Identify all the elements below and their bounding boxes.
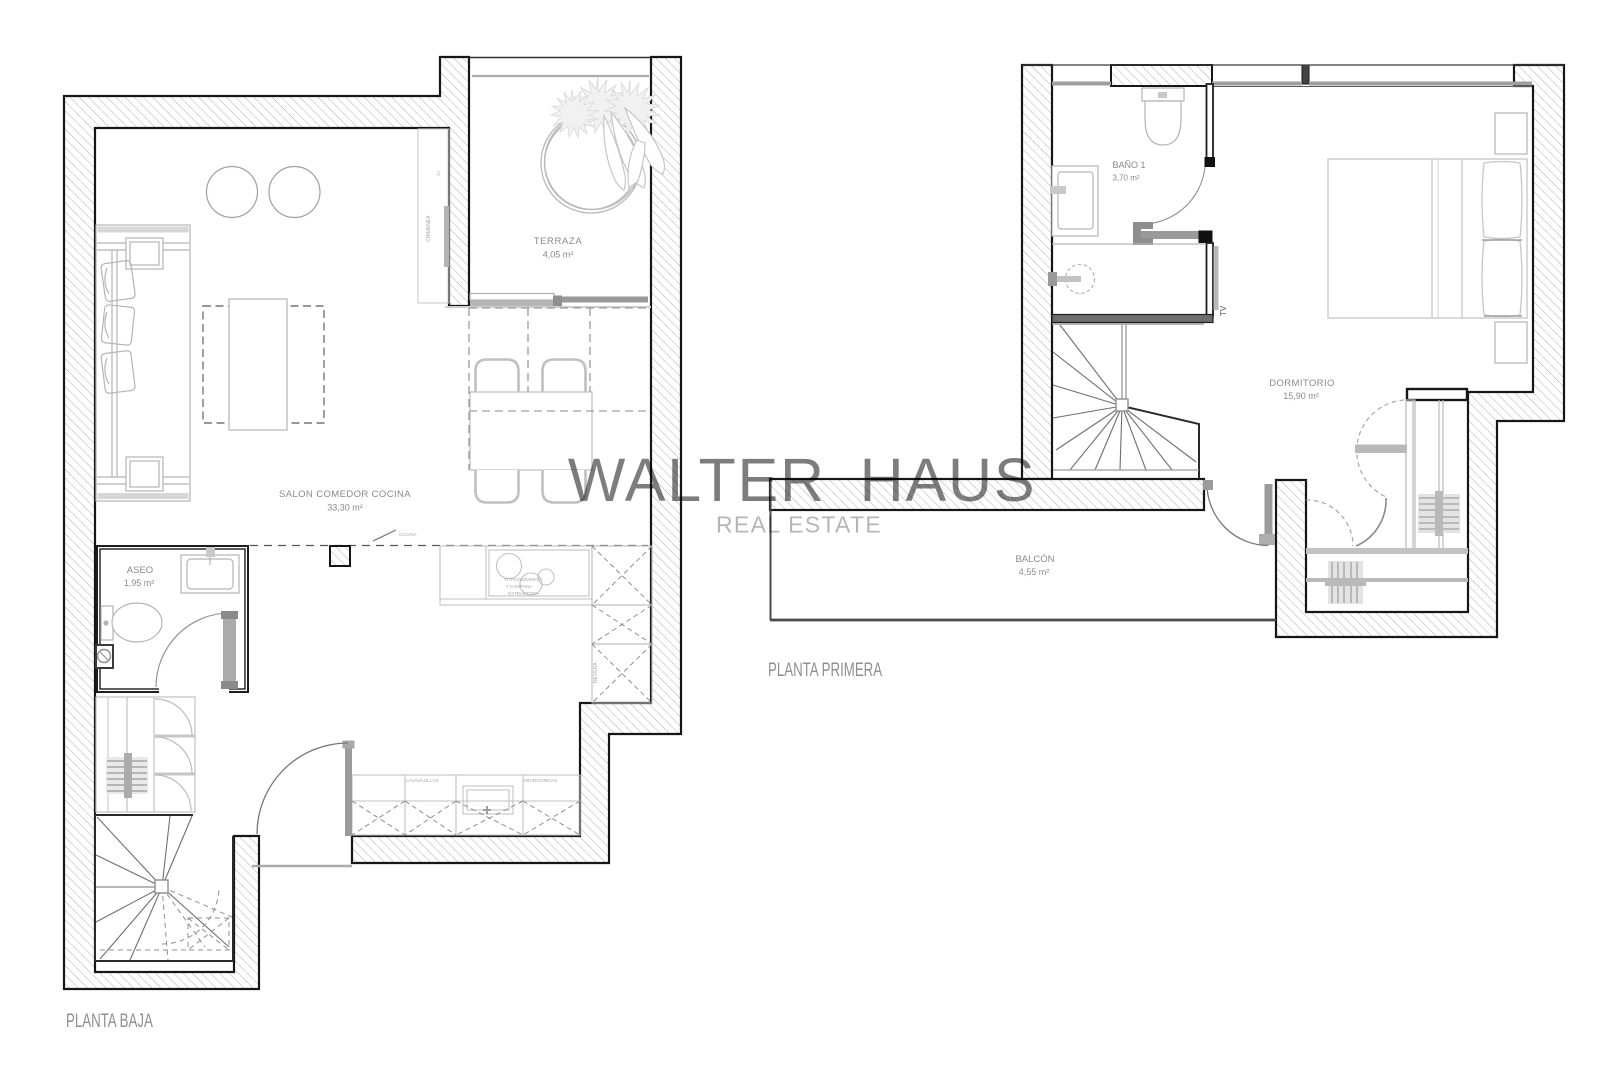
svg-text:LAVAVAJILLAS: LAVAVAJILLAS <box>406 778 439 784</box>
svg-text:TV: TV <box>1219 305 1228 316</box>
svg-text:Y CAMPANA: Y CAMPANA <box>506 584 532 589</box>
svg-text:1,95 m²: 1,95 m² <box>124 578 155 588</box>
svg-text:VITROCERAMICA: VITROCERAMICA <box>504 577 542 582</box>
svg-text:33,30 m²: 33,30 m² <box>327 503 363 513</box>
svg-text:PLANTA BAJA: PLANTA BAJA <box>66 1011 153 1032</box>
svg-text:BAÑO 1: BAÑO 1 <box>1112 160 1145 170</box>
svg-text:COCINA: COCINA <box>399 532 417 537</box>
svg-text:4,55 m²: 4,55 m² <box>1019 567 1050 577</box>
svg-text:REAL ESTATE: REAL ESTATE <box>716 512 882 538</box>
svg-text:15,90 m²: 15,90 m² <box>1283 391 1319 401</box>
svg-text:MICROONDAS: MICROONDAS <box>524 778 557 784</box>
svg-text:4,05 m²: 4,05 m² <box>543 250 574 260</box>
svg-text:SALON COMEDOR COCINA: SALON COMEDOR COCINA <box>279 489 411 500</box>
svg-text:DORMITORIO: DORMITORIO <box>1269 378 1335 389</box>
svg-text:CHIMENEA: CHIMENEA <box>426 215 432 242</box>
svg-text:ASEO: ASEO <box>127 565 153 576</box>
svg-text:WALTER HAUS: WALTER HAUS <box>568 446 1037 514</box>
svg-text:TERRAZA: TERRAZA <box>534 236 583 247</box>
svg-text:S.I: S.I <box>436 170 441 176</box>
svg-text:PLANTA PRIMERA: PLANTA PRIMERA <box>768 660 882 681</box>
svg-text:BALCÓN: BALCÓN <box>1015 554 1054 565</box>
svg-text:NEVERA: NEVERA <box>593 662 599 683</box>
svg-text:EXTRACTORA: EXTRACTORA <box>508 591 539 596</box>
svg-text:3,70 m²: 3,70 m² <box>1112 174 1139 183</box>
